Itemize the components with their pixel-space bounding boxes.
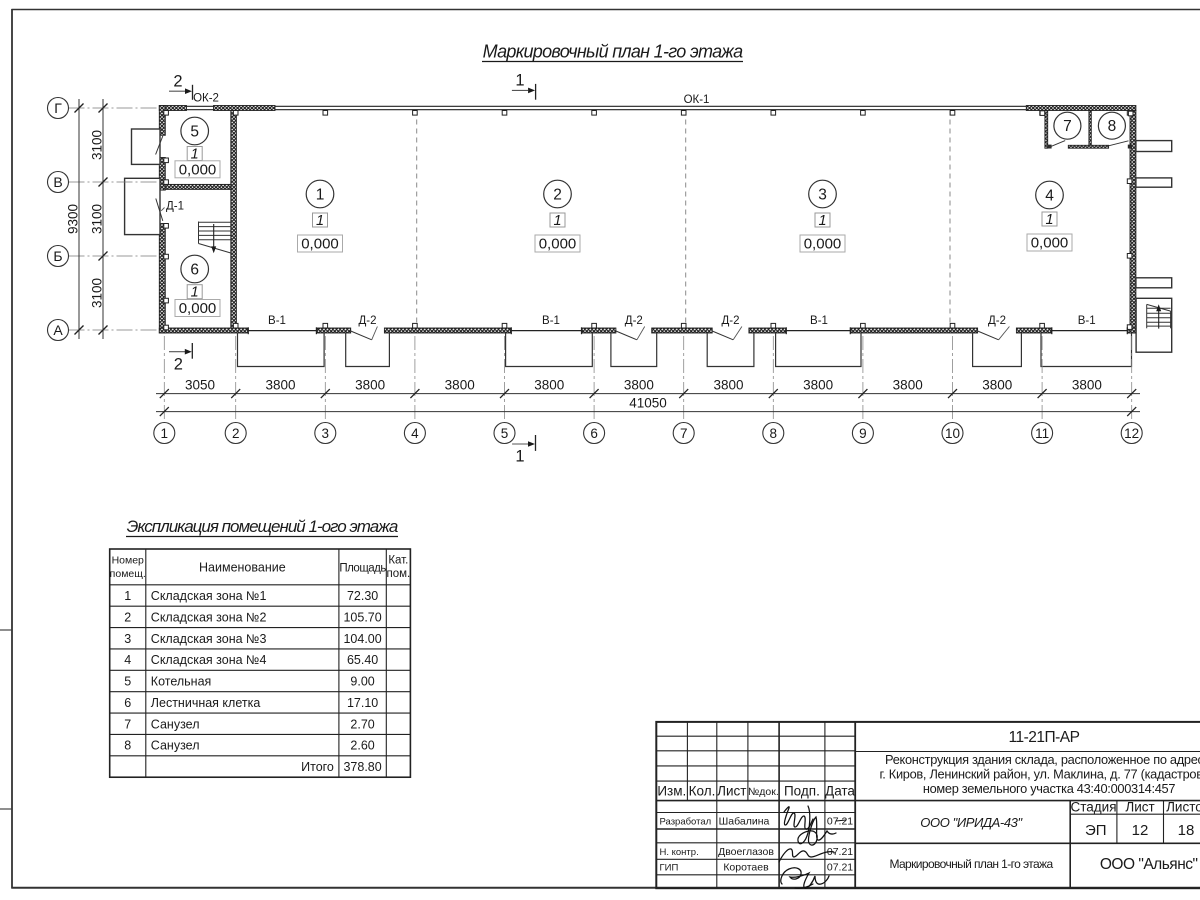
svg-text:Площадь: Площадь: [339, 563, 386, 575]
svg-text:Подп.: Подп.: [784, 784, 820, 799]
svg-text:1: 1: [1045, 212, 1053, 228]
svg-text:3800: 3800: [893, 378, 923, 393]
svg-text:3100: 3100: [90, 278, 105, 308]
svg-text:В-1: В-1: [268, 315, 286, 327]
svg-text:0,000: 0,000: [179, 300, 217, 317]
svg-text:Котельная: Котельная: [151, 675, 212, 689]
svg-text:Санузел: Санузел: [151, 717, 200, 731]
svg-text:Разработал: Разработал: [660, 817, 712, 828]
svg-text:номер земельного участка 43:40: номер земельного участка 43:40:000314:45…: [923, 781, 1176, 796]
svg-text:378.80: 378.80: [343, 760, 381, 774]
svg-text:помещ.: помещ.: [110, 568, 146, 580]
svg-text:3100: 3100: [90, 130, 105, 160]
svg-text:Итого: Итого: [301, 760, 334, 774]
svg-text:1: 1: [161, 426, 169, 441]
svg-text:0,000: 0,000: [179, 161, 217, 178]
svg-text:3800: 3800: [265, 378, 295, 393]
svg-text:Экспликация помещений 1-ого эт: Экспликация помещений 1-ого этажа: [127, 517, 398, 536]
svg-text:ООО "ИРИДА-43": ООО "ИРИДА-43": [920, 815, 1023, 830]
svg-text:Складская зона №1: Складская зона №1: [151, 589, 267, 603]
svg-text:3: 3: [322, 426, 330, 441]
svg-text:1: 1: [316, 187, 325, 204]
svg-text:Двоеглазов: Двоеглазов: [718, 846, 774, 858]
svg-text:2: 2: [173, 73, 182, 91]
svg-text:пом.: пом.: [386, 568, 410, 580]
svg-text:3800: 3800: [624, 378, 654, 393]
svg-text:3: 3: [124, 632, 131, 646]
svg-text:3800: 3800: [534, 378, 564, 393]
svg-text:7: 7: [1063, 118, 1072, 135]
svg-text:3100: 3100: [90, 204, 105, 234]
svg-text:А: А: [53, 322, 63, 338]
svg-text:г. Киров, Ленинский район, ул.: г. Киров, Ленинский район, ул. Маклина, …: [879, 767, 1200, 782]
svg-text:7: 7: [124, 717, 131, 731]
svg-text:65.40: 65.40: [347, 653, 378, 667]
svg-text:Д-2: Д-2: [988, 315, 1006, 327]
svg-text:8: 8: [770, 426, 778, 441]
svg-text:2: 2: [124, 610, 131, 624]
svg-text:В-1: В-1: [542, 315, 560, 327]
svg-text:Стадия: Стадия: [1070, 800, 1116, 815]
svg-text:0,000: 0,000: [301, 236, 339, 253]
svg-text:Лист: Лист: [1125, 800, 1154, 815]
svg-text:11-21П-АР: 11-21П-АР: [1009, 729, 1080, 746]
svg-text:12: 12: [1124, 426, 1139, 441]
svg-text:Реконструкция здания склада, р: Реконструкция здания склада, расположенн…: [885, 752, 1200, 767]
svg-text:Маркировочный план 1-го этажа: Маркировочный план 1-го этажа: [483, 42, 744, 62]
svg-text:18: 18: [1178, 822, 1195, 839]
svg-text:2.60: 2.60: [350, 739, 374, 753]
svg-text:Дата: Дата: [825, 784, 855, 799]
svg-text:3: 3: [818, 187, 827, 204]
svg-text:Складская зона №4: Складская зона №4: [151, 653, 267, 667]
svg-text:Лестничная клетка: Лестничная клетка: [151, 696, 261, 710]
svg-text:12: 12: [1132, 822, 1149, 839]
svg-text:10: 10: [945, 426, 960, 441]
svg-text:Д-1: Д-1: [166, 201, 184, 213]
svg-text:3800: 3800: [1072, 378, 1102, 393]
svg-text:1: 1: [191, 285, 199, 301]
svg-text:ООО "Альянс": ООО "Альянс": [1100, 856, 1198, 873]
svg-text:3800: 3800: [713, 378, 743, 393]
svg-text:Д-2: Д-2: [625, 315, 643, 327]
svg-text:3800: 3800: [355, 378, 385, 393]
svg-text:2.70: 2.70: [350, 717, 374, 731]
svg-text:4: 4: [1045, 188, 1054, 205]
svg-text:1: 1: [515, 448, 524, 466]
svg-text:3050: 3050: [185, 378, 215, 393]
svg-text:72.30: 72.30: [347, 589, 378, 603]
svg-text:2: 2: [553, 187, 562, 204]
svg-text:6: 6: [190, 262, 199, 279]
svg-text:7: 7: [680, 426, 688, 441]
svg-text:Шабалина: Шабалина: [719, 816, 770, 828]
svg-text:Складская зона №2: Складская зона №2: [151, 610, 267, 624]
svg-text:17.10: 17.10: [347, 696, 378, 710]
svg-text:Коротаев: Коротаев: [723, 862, 769, 874]
svg-text:0,000: 0,000: [539, 236, 577, 253]
svg-text:6: 6: [590, 426, 598, 441]
svg-text:5: 5: [124, 675, 131, 689]
svg-text:Листов: Листов: [1166, 800, 1200, 815]
svg-text:1: 1: [191, 147, 199, 163]
svg-text:07.21: 07.21: [827, 862, 853, 874]
svg-text:2: 2: [174, 356, 183, 374]
svg-text:1: 1: [515, 72, 524, 90]
svg-text:Лист: Лист: [717, 784, 746, 799]
svg-text:В-1: В-1: [1078, 315, 1096, 327]
svg-text:0,000: 0,000: [804, 236, 842, 253]
svg-text:Кат.: Кат.: [388, 555, 408, 567]
svg-text:ГИП: ГИП: [660, 863, 679, 874]
svg-text:3800: 3800: [982, 378, 1012, 393]
svg-text:9.00: 9.00: [350, 675, 374, 689]
svg-text:Маркировочный план 1-го этажа: Маркировочный план 1-го этажа: [889, 857, 1053, 871]
svg-text:№док.: №док.: [748, 786, 779, 798]
svg-text:9: 9: [859, 426, 867, 441]
svg-text:Санузел: Санузел: [151, 739, 200, 753]
svg-text:8: 8: [124, 739, 131, 753]
svg-text:1: 1: [553, 213, 561, 229]
svg-text:3800: 3800: [803, 378, 833, 393]
svg-text:Изм.: Изм.: [657, 784, 686, 799]
svg-text:0,000: 0,000: [1031, 235, 1069, 252]
svg-text:5: 5: [190, 124, 199, 141]
svg-text:Н. контр.: Н. контр.: [660, 847, 699, 858]
svg-text:8: 8: [1108, 118, 1117, 135]
svg-text:Наименование: Наименование: [199, 561, 286, 575]
svg-text:1: 1: [818, 213, 826, 229]
svg-text:104.00: 104.00: [343, 632, 381, 646]
svg-text:105.70: 105.70: [343, 610, 381, 624]
svg-text:Б: Б: [53, 248, 62, 264]
svg-text:1: 1: [316, 213, 324, 229]
svg-text:Д-2: Д-2: [721, 315, 739, 327]
svg-text:9300: 9300: [66, 204, 81, 234]
svg-text:Кол.: Кол.: [689, 784, 716, 799]
svg-text:В-1: В-1: [810, 315, 828, 327]
svg-text:Складская зона №3: Складская зона №3: [151, 632, 267, 646]
svg-text:Д-2: Д-2: [358, 315, 376, 327]
svg-text:07.21: 07.21: [827, 816, 853, 828]
svg-text:ОК-1: ОК-1: [684, 94, 710, 106]
svg-text:11: 11: [1035, 426, 1049, 441]
svg-text:ОК-2: ОК-2: [193, 93, 219, 105]
svg-text:4: 4: [124, 653, 131, 667]
svg-text:6: 6: [124, 696, 131, 710]
svg-text:5: 5: [501, 426, 509, 441]
svg-text:В: В: [53, 174, 62, 190]
svg-text:4: 4: [411, 426, 419, 441]
svg-text:3800: 3800: [445, 378, 475, 393]
svg-text:1: 1: [124, 589, 131, 603]
svg-text:Номер: Номер: [112, 555, 144, 567]
svg-text:41050: 41050: [629, 396, 667, 411]
svg-text:ЭП: ЭП: [1085, 822, 1107, 839]
svg-text:Г: Г: [54, 100, 62, 116]
svg-text:2: 2: [232, 426, 240, 441]
